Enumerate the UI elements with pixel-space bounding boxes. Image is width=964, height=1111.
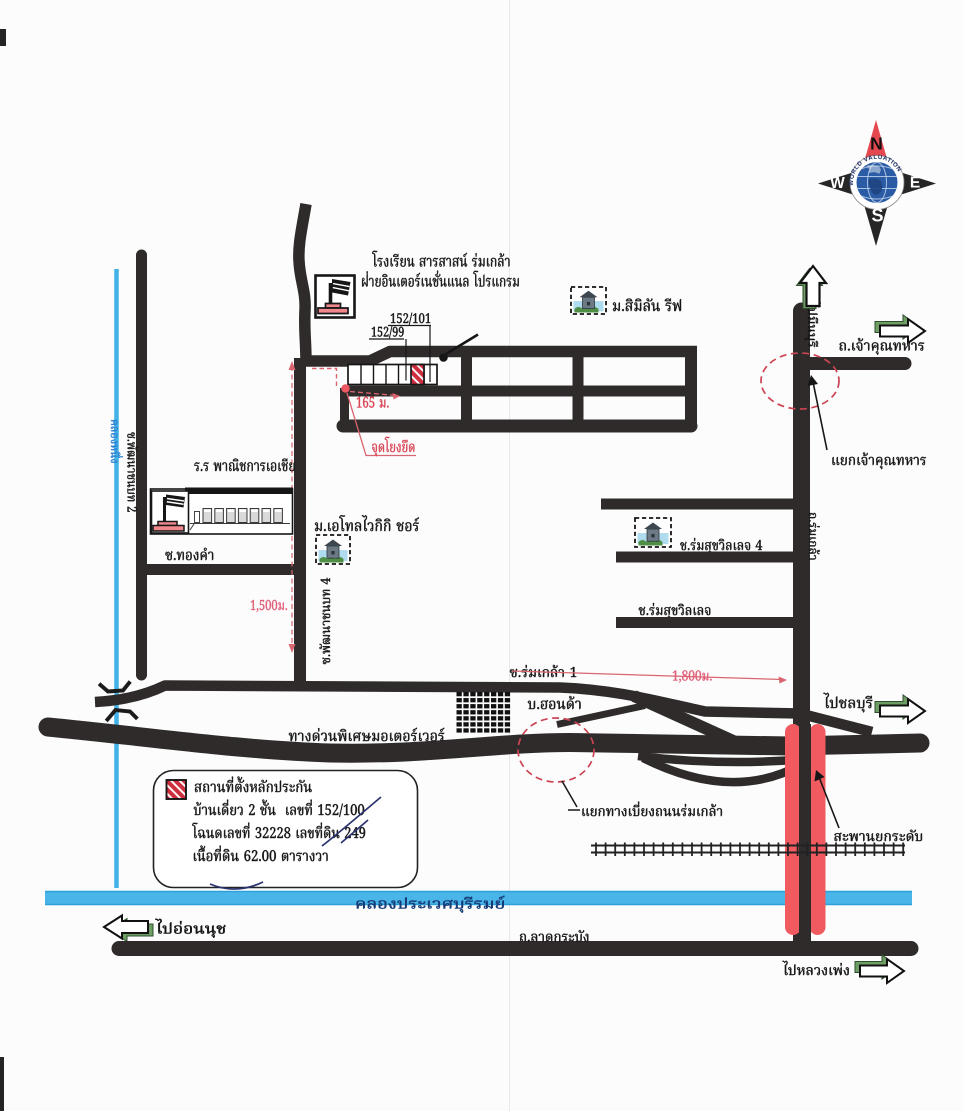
svg-text:S: S xyxy=(871,206,883,226)
svg-text:W: W xyxy=(830,175,845,192)
svg-text:E: E xyxy=(910,175,920,192)
svg-text:N: N xyxy=(870,134,883,154)
